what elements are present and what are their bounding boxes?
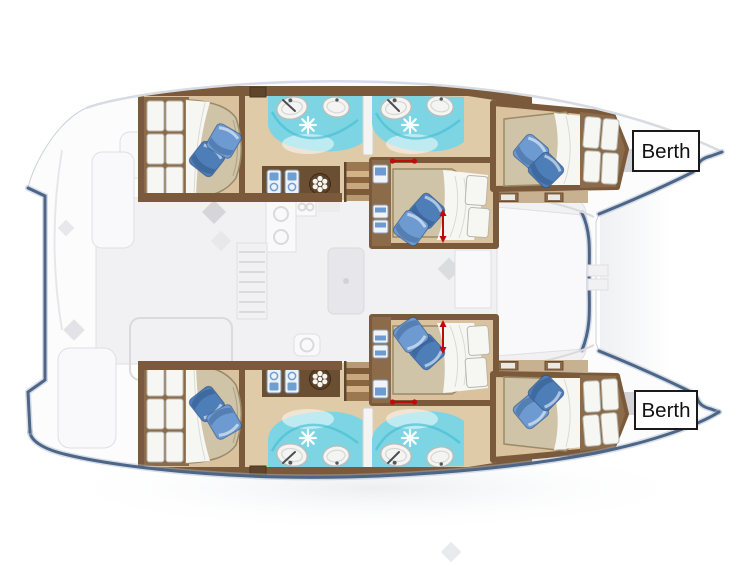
toilet-ghost xyxy=(294,334,320,356)
ghost-pillow xyxy=(441,542,461,562)
berth-label-top: Berth xyxy=(633,131,699,171)
foredeck-step-ghost xyxy=(588,265,608,276)
inter-cabin-ghost xyxy=(455,250,491,308)
forward-cabin xyxy=(493,103,626,190)
cockpit-seat-ghost xyxy=(92,152,134,248)
bathroom-aft xyxy=(268,94,364,154)
gunwale-band xyxy=(492,191,588,203)
foredeck-step-ghost xyxy=(588,279,608,290)
deck-plan-canvas: Berth Berth xyxy=(0,0,755,566)
roof-hatch xyxy=(250,87,266,97)
aft-cabin xyxy=(141,89,243,199)
cockpit-table-ghost xyxy=(58,348,116,448)
boat-layout-plan: Berth Berth xyxy=(0,0,755,566)
foredeck-lounge-ghost xyxy=(497,207,589,356)
berth-label-text: Berth xyxy=(642,399,691,422)
middle-cabin xyxy=(372,160,496,248)
hull-top-trim xyxy=(138,86,468,96)
berth-label-bottom: Berth xyxy=(635,391,697,429)
berth-label-text: Berth xyxy=(642,140,691,163)
bathroom-partition xyxy=(363,93,373,155)
hull-bottom-trim xyxy=(138,193,342,202)
